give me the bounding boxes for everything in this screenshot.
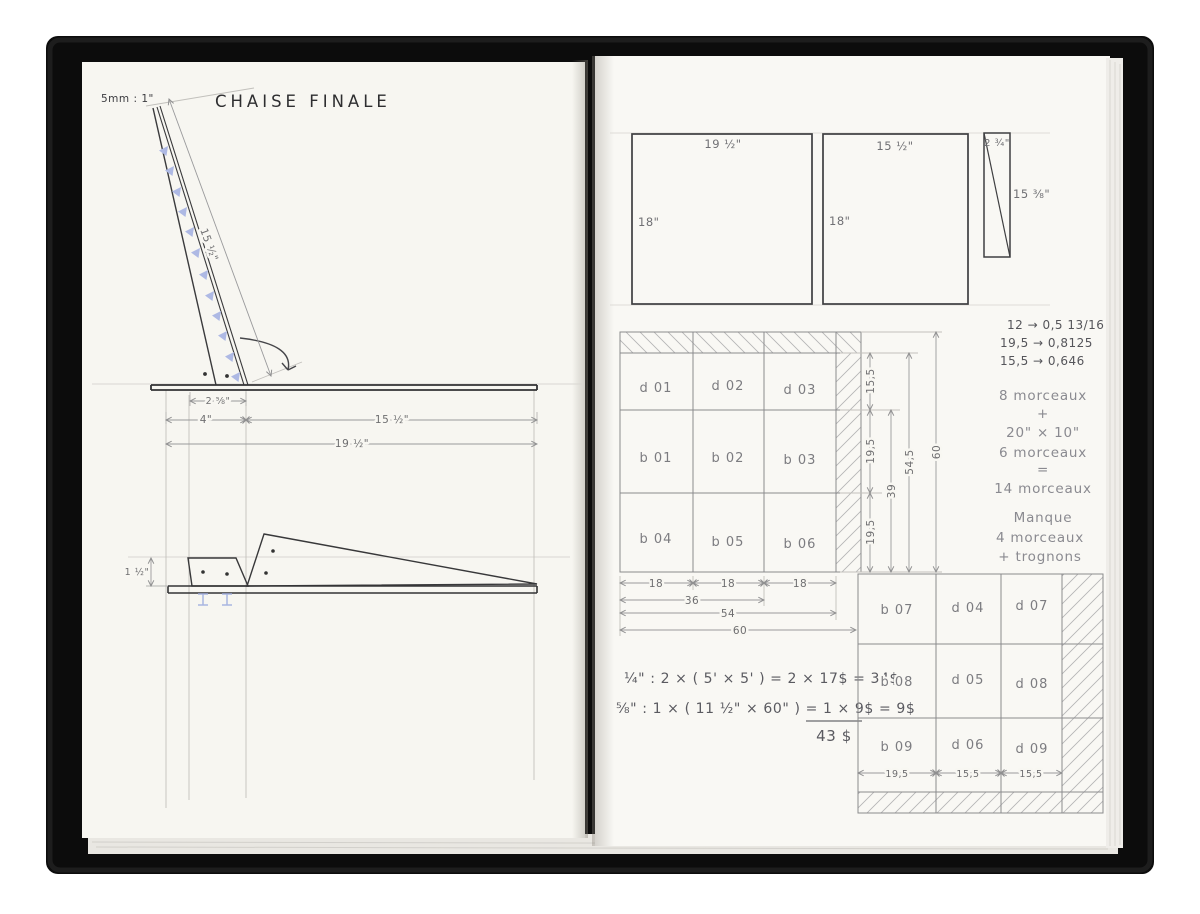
pivot-dot (264, 571, 268, 575)
waste-strip-bottom (858, 792, 1103, 813)
panel-2-width: 15 ½" (876, 139, 913, 153)
pivot-dot (203, 372, 207, 376)
cut1-cell: d 02 (712, 379, 745, 394)
waste-strip-right (836, 353, 861, 572)
cut1-span-dim: 54 (721, 608, 735, 620)
cut1-cell: b 06 (784, 537, 817, 552)
cut2-cell: b 09 (881, 740, 914, 755)
gutter-shadow-left (572, 60, 588, 838)
cut1-cell: b 04 (640, 532, 673, 547)
cut1-cell: d 03 (784, 383, 817, 398)
panel-1-height: 18" (638, 215, 659, 229)
dim-seat-rest: 15 ½" (375, 414, 409, 426)
cut1-cell: b 03 (784, 453, 817, 468)
manque-line: Manque (1014, 510, 1073, 526)
cut1-row-dim: 19,5 (865, 438, 877, 463)
panel-3-height: 15 ⅜" (1013, 187, 1050, 201)
cut1-col-dim: 18 (793, 578, 807, 590)
cut1-row-dim: 15,5 (865, 368, 877, 393)
tally-line: 8 morceaux (999, 388, 1087, 404)
cut2-col-dim: 15,5 (956, 769, 979, 780)
pivot-dot (201, 570, 205, 574)
tally-line: 20" × 10" (1006, 425, 1080, 441)
cut1-col-dim: 18 (649, 578, 663, 590)
cut2-cell: b 08 (881, 675, 914, 690)
panel-2-height: 18" (829, 214, 850, 228)
tally-line: 14 morceaux (994, 481, 1091, 497)
sketchbook-spread: 5mm : 1" CHAISE FINALE 15 ½" 2 ⅝" 4" (0, 0, 1200, 914)
cut2-col-dim: 19,5 (885, 769, 908, 780)
tally-line: + (1037, 406, 1049, 422)
dim-back-base: 2 ⅝" (206, 396, 231, 407)
left-page (82, 62, 585, 838)
panel-1-width: 19 ½" (704, 137, 741, 151)
cut2-cell: d 09 (1016, 742, 1049, 757)
cut2-cell: d 06 (952, 738, 985, 753)
manque-line: 4 morceaux (996, 530, 1084, 546)
cut2-cell: d 07 (1016, 599, 1049, 614)
page-title: CHAISE FINALE (215, 92, 391, 111)
cut1-rowspan-dim: 54,5 (904, 449, 916, 474)
cut2-cell: b 07 (881, 603, 914, 618)
cut2-col-dim: 15,5 (1019, 769, 1042, 780)
cut1-cell: d 01 (640, 381, 673, 396)
gutter-shadow-right (592, 56, 614, 846)
cut1-cell: b 02 (712, 451, 745, 466)
cut1-span-dim: 36 (685, 595, 699, 607)
cut1-row-dim: 19,5 (865, 519, 877, 544)
conversion-line: 19,5 → 0,8125 (1000, 336, 1093, 350)
dim-profile-height: 1 ½" (125, 567, 150, 578)
panel-3-width: 2 ¾" (984, 138, 1010, 149)
cost-line-fiveeighths: ⅝" : 1 × ( 11 ½" × 60" ) = 1 × 9$ = 9$ (616, 701, 915, 717)
cut2-cell: d 04 (952, 601, 985, 616)
cut1-span-dim: 60 (733, 625, 747, 637)
cut1-rowspan-dim: 39 (886, 484, 898, 498)
conversion-line: 15,5 → 0,646 (1000, 354, 1085, 368)
manque-line: + trognons (998, 549, 1081, 565)
cut1-cell: b 01 (640, 451, 673, 466)
conversion-line: 12 → 0,5 13/16 (1007, 318, 1104, 332)
pivot-dot (271, 549, 275, 553)
cut1-rowspan-dim: 60 (931, 445, 943, 459)
waste-strip-top (620, 332, 861, 353)
tally-line: = (1037, 462, 1049, 478)
pivot-dot (225, 572, 229, 576)
dim-seat-total: 19 ½" (335, 438, 369, 450)
cut1-col-dim: 18 (721, 578, 735, 590)
cut2-cell: d 05 (952, 673, 985, 688)
cut2-cell: d 08 (1016, 677, 1049, 692)
tally-line: 6 morceaux (999, 445, 1087, 461)
cut1-cell: b 05 (712, 535, 745, 550)
pivot-dot (225, 374, 229, 378)
cost-total: 43 $ (816, 727, 852, 745)
dim-seat-front: 4" (200, 414, 213, 426)
waste-strip-right (1062, 574, 1103, 792)
notebook-scan: 5mm : 1" CHAISE FINALE 15 ½" 2 ⅝" 4" (0, 0, 1200, 914)
scale-note: 5mm : 1" (101, 93, 154, 105)
